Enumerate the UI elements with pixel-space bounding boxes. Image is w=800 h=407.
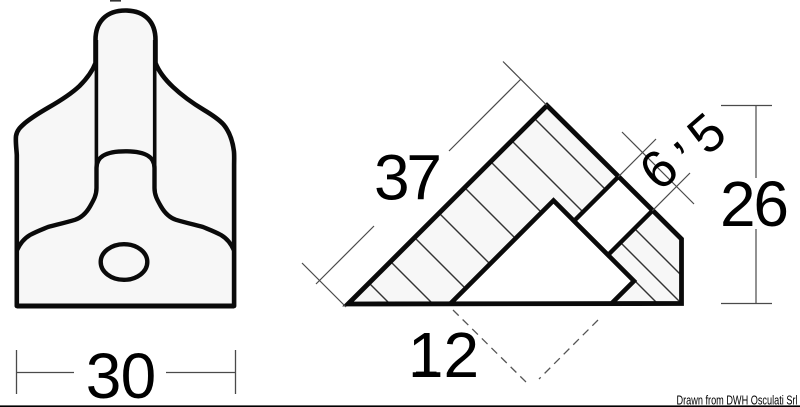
svg-text:30: 30 (86, 340, 157, 407)
svg-text:37: 37 (374, 142, 442, 214)
svg-text:12: 12 (408, 319, 479, 391)
svg-text:Drawn from DWH Osculati Srl: Drawn from DWH Osculati Srl (677, 394, 798, 407)
svg-text:26: 26 (720, 168, 789, 240)
